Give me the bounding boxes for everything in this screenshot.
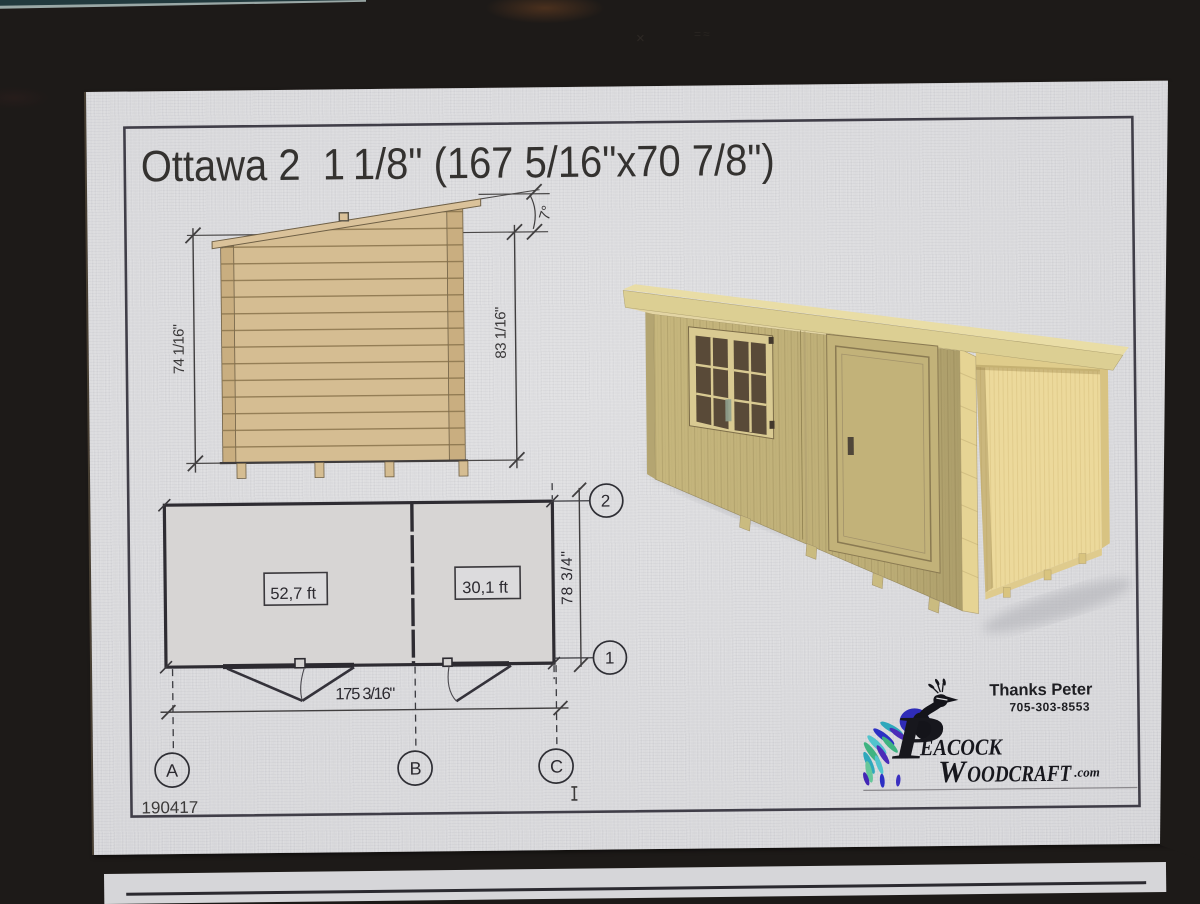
svg-text:78 3/4": 78 3/4" [559, 551, 577, 605]
svg-text:B: B [409, 759, 421, 779]
svg-text:52,7 ft: 52,7 ft [270, 585, 316, 603]
svg-text:190417: 190417 [141, 798, 198, 818]
svg-text:2: 2 [601, 492, 611, 511]
svg-text:175 3/16": 175 3/16" [335, 685, 395, 704]
svg-text:705-303-8553: 705-303-8553 [1009, 700, 1089, 715]
svg-text:Thanks Peter: Thanks Peter [989, 680, 1093, 699]
svg-text:83 1/16": 83 1/16" [492, 307, 510, 359]
svg-text:C: C [550, 757, 563, 777]
svg-text:.com: .com [1074, 764, 1100, 779]
svg-text:OODCRAFT: OODCRAFT [967, 761, 1072, 787]
svg-text:A: A [166, 761, 178, 781]
svg-text:Ottawa 2 1 1/8" (167 5/16"x70: Ottawa 2 1 1/8" (167 5/16"x70 7/8") [141, 136, 775, 192]
svg-text:1: 1 [605, 648, 615, 667]
svg-text:74 1/16": 74 1/16" [170, 324, 188, 374]
svg-text:W: W [938, 754, 968, 789]
svg-text:30,1 ft: 30,1 ft [462, 579, 508, 597]
